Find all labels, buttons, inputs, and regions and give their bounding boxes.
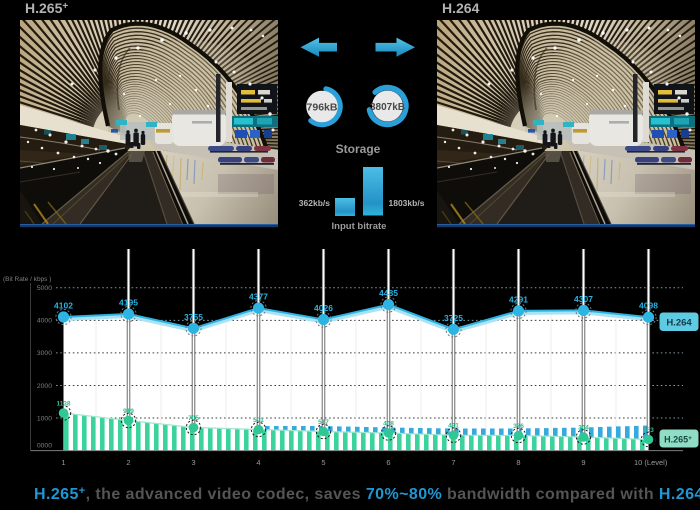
svg-text:2000: 2000	[37, 383, 52, 390]
svg-text:Input bitrate: Input bitrate	[332, 221, 387, 232]
svg-text:4000: 4000	[37, 318, 52, 325]
svg-text:3: 3	[191, 458, 195, 467]
svg-text:2: 2	[126, 458, 130, 467]
svg-text:4195: 4195	[119, 298, 138, 308]
svg-text:4102: 4102	[54, 301, 73, 311]
svg-text:H.265+: H.265+	[664, 435, 692, 445]
svg-text:H.264: H.264	[442, 0, 480, 16]
svg-text:3725: 3725	[444, 313, 463, 323]
svg-text:9: 9	[581, 458, 585, 467]
svg-text:4026: 4026	[314, 303, 333, 313]
svg-text:353: 353	[643, 427, 654, 434]
svg-text:4377: 4377	[249, 292, 268, 302]
svg-text:4307: 4307	[574, 294, 593, 304]
svg-text:796kB: 796kB	[307, 102, 338, 114]
svg-text:919: 919	[123, 408, 134, 415]
svg-text:Storage: Storage	[336, 142, 381, 156]
svg-text:3000: 3000	[37, 350, 52, 357]
svg-text:468: 468	[383, 421, 394, 428]
svg-text:0000: 0000	[37, 443, 52, 450]
svg-text:376: 376	[513, 423, 524, 430]
svg-text:4098: 4098	[639, 301, 658, 311]
svg-text:6: 6	[386, 458, 390, 467]
svg-text:4291: 4291	[509, 294, 528, 304]
svg-text:1: 1	[61, 458, 65, 467]
svg-text:705: 705	[188, 415, 199, 422]
svg-text:H.265+: H.265+	[25, 0, 68, 16]
svg-text:4: 4	[256, 458, 260, 467]
svg-text:1803kb/s: 1803kb/s	[389, 198, 425, 208]
svg-text:8: 8	[516, 458, 520, 467]
svg-text:5: 5	[321, 458, 325, 467]
svg-text:3755: 3755	[184, 312, 203, 322]
svg-text:H.265+, the advanced video cod: H.265+, the advanced video codec, saves …	[34, 485, 700, 503]
svg-text:1138: 1138	[56, 401, 70, 408]
svg-text:364: 364	[578, 425, 589, 432]
svg-text:4485: 4485	[379, 288, 398, 298]
svg-text:H.264: H.264	[666, 318, 692, 329]
svg-text:10 (Level): 10 (Level)	[634, 458, 668, 467]
svg-text:3807kB: 3807kB	[370, 102, 405, 113]
svg-text:591: 591	[253, 417, 264, 424]
svg-text:(Bit Rate / kbps ): (Bit Rate / kbps )	[3, 276, 51, 283]
svg-text:431: 431	[448, 423, 459, 430]
svg-text:362kb/s: 362kb/s	[299, 198, 330, 208]
svg-text:7: 7	[451, 458, 455, 467]
svg-text:5000: 5000	[37, 285, 52, 292]
svg-text:517: 517	[318, 419, 329, 426]
svg-text:1000: 1000	[37, 415, 52, 422]
